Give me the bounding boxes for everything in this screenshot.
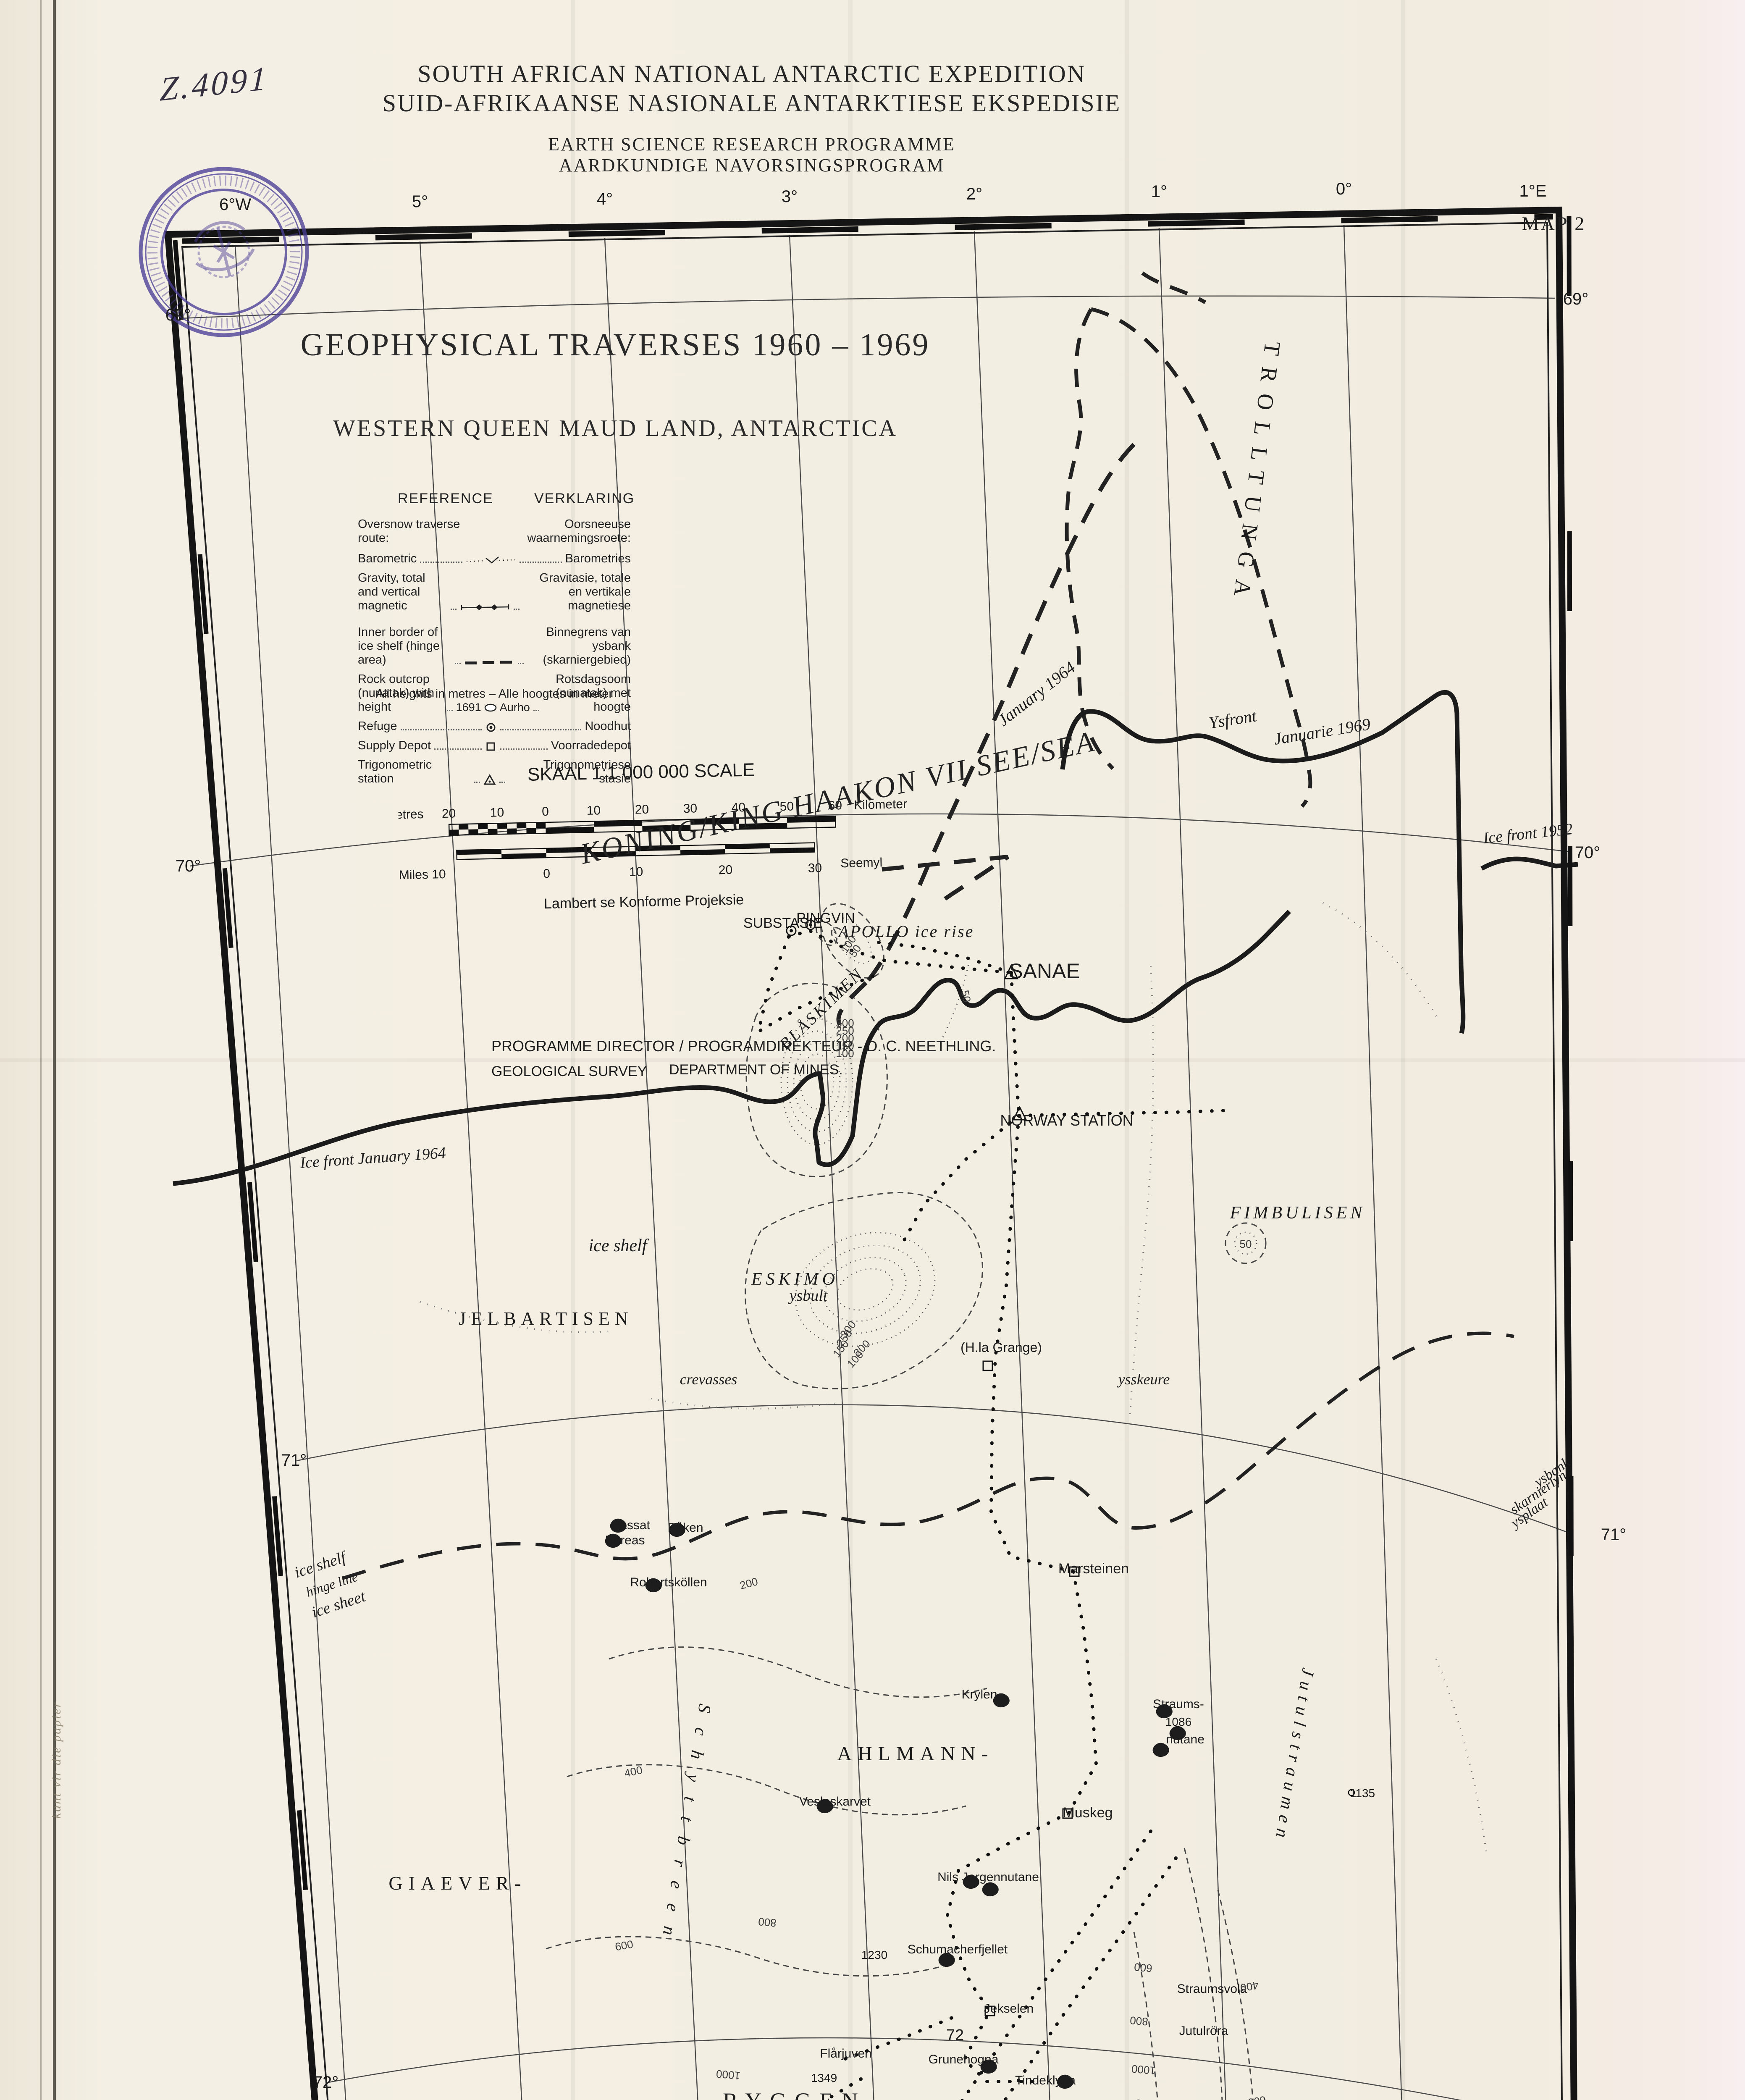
map-number: MAP 2 xyxy=(1522,213,1586,235)
map-label: FIMBULISEN xyxy=(1230,1204,1366,1222)
scale-segment xyxy=(497,829,507,834)
gravity-route-icon xyxy=(460,602,510,613)
scale-segment xyxy=(459,829,468,835)
map-label: Boreas xyxy=(605,1534,645,1547)
contour-label: 800 xyxy=(1129,2015,1148,2027)
scale-text: 30 xyxy=(808,861,822,875)
contour-label: 100 xyxy=(836,1048,854,1059)
scale-segment xyxy=(478,829,488,835)
scale-segment xyxy=(517,823,526,828)
map-label: Jekselen xyxy=(984,2003,1034,2015)
hinge-border-icon xyxy=(464,658,514,667)
map-label: ysbult xyxy=(790,1288,828,1304)
map-label: Tindeklypa xyxy=(1015,2074,1076,2087)
station-symbols xyxy=(619,920,1354,2100)
scale-text: 20 xyxy=(442,806,456,821)
legend-af: Noodhut xyxy=(585,719,631,733)
hinge-line xyxy=(342,1333,1514,1579)
legend-leader xyxy=(533,710,539,711)
scale-segment xyxy=(725,844,770,849)
map-label: PINGVIN xyxy=(796,911,855,925)
graticule-label-top: 6°W xyxy=(219,196,251,213)
graticule-label-left: 69° xyxy=(165,307,191,323)
map-label: Vesleskarvet xyxy=(799,1795,871,1808)
contour-label: 400 xyxy=(1239,1979,1259,1993)
contour-label: 1000 xyxy=(716,2068,741,2082)
graticule-label-left: 72° xyxy=(313,2074,339,2091)
scale-segment xyxy=(536,828,546,833)
scale-segment xyxy=(517,828,526,834)
refuge-icon xyxy=(485,722,497,733)
map-label: Krylen xyxy=(961,1688,997,1701)
map-label: GIAEVER- xyxy=(388,1874,527,1893)
scale-segment xyxy=(459,824,468,829)
map-label: 1230 xyxy=(861,1949,887,1961)
scale-text: SKAAL 1:1 000 000 SCALE xyxy=(527,760,755,785)
supply-depot-icon xyxy=(731,1361,1079,2100)
map-label: RYGGEN xyxy=(723,2089,866,2100)
scale-text: 10 xyxy=(586,803,601,818)
scale-segment xyxy=(488,829,497,834)
scale-segment xyxy=(488,823,497,829)
contour-label: 50 xyxy=(959,989,972,1003)
programme-en: EARTH SCIENCE RESEARCH PROGRAMME xyxy=(548,134,955,155)
legend-leader xyxy=(455,663,461,664)
graticule-label-top: 4° xyxy=(597,191,613,207)
scale-text: 10 xyxy=(490,806,504,820)
map-sheet: 0° 90°W 90°E 180° South Pole ANTARCTICA … xyxy=(0,0,1745,2100)
legend-leader xyxy=(447,710,453,711)
legend-en: Refuge xyxy=(358,719,397,733)
graticule-label-top: 1° xyxy=(1151,183,1167,200)
scale-text: Seemyl xyxy=(840,856,883,870)
map-label: Marsteinen xyxy=(1058,1562,1129,1576)
legend-en: Oversnow traverse route: xyxy=(358,517,478,545)
map-label: APOLLO ice rise xyxy=(839,923,974,940)
legend-row: Inner border of ice shelf (hinge area)Bi… xyxy=(358,625,631,667)
map-label: (H.la Grange) xyxy=(960,1341,1042,1354)
map-label: nutane xyxy=(1166,1733,1204,1746)
graticule-label-top: 3° xyxy=(782,188,798,205)
map-label: ysskeure xyxy=(1118,1372,1170,1387)
credit-department: DEPARTMENT OF MINES. xyxy=(669,1062,843,1078)
map-label: ESKIMO xyxy=(751,1270,839,1288)
legend-outcrop-height: 1691 xyxy=(456,701,481,714)
map-label: 1135 xyxy=(1350,1788,1375,1799)
scale-segment xyxy=(546,827,594,833)
legend-title-en: REFERENCE xyxy=(398,491,493,507)
scale-segment xyxy=(497,823,507,829)
graticule-label-top: 1°E xyxy=(1519,183,1547,199)
scale-segment xyxy=(478,824,488,829)
credit-survey: GEOLOGICAL SURVEY xyxy=(491,1063,647,1080)
map-label: ice shelf xyxy=(589,1237,647,1255)
map-label: 1086 xyxy=(1165,1716,1191,1728)
scale-segment xyxy=(770,848,815,853)
legend-leader xyxy=(500,729,581,730)
graticule-label-right: 70° xyxy=(1575,844,1601,861)
map-label: JELBARTISEN xyxy=(459,1310,633,1328)
legend-leader xyxy=(518,663,524,664)
graticule-label-right: 71° xyxy=(1601,1526,1627,1543)
contour-label: 1000 xyxy=(1131,2063,1156,2076)
programme-af: AARDKUNDIGE NAVORSINGSPROGRAM xyxy=(559,155,945,176)
sheet-title-en: SOUTH AFRICAN NATIONAL ANTARCTIC EXPEDIT… xyxy=(417,60,1086,88)
legend-en: Inner border of ice shelf (hinge area) xyxy=(358,625,451,667)
contour-label: 50 xyxy=(1240,1239,1252,1249)
map-label: Muskeg xyxy=(1063,1806,1113,1820)
scale-segment xyxy=(507,828,517,834)
scale-segment xyxy=(536,822,546,828)
scale-text: 0 xyxy=(542,805,549,819)
map-label: crevasses xyxy=(680,1372,737,1387)
legend-title-af: VERKLARING xyxy=(534,491,635,507)
legend-row: Gravity, total and vertical magneticGrav… xyxy=(358,571,631,613)
scale-segment xyxy=(680,849,725,855)
map-label: Straumsvola xyxy=(1177,1983,1247,1995)
map-label: NORWAY STATION xyxy=(1000,1113,1133,1128)
scale-segment xyxy=(526,822,536,828)
legend-row: Oversnow traverse route:Oorsneeuse waarn… xyxy=(358,517,631,545)
map-label: Robertsköllen xyxy=(630,1576,707,1589)
legend-row: RefugeNoodhut xyxy=(358,719,631,733)
scale-text: 10 xyxy=(629,865,643,879)
credit-director: PROGRAMME DIRECTOR / PROGRAMDIREKTEUR - … xyxy=(491,1037,996,1055)
scale-segment xyxy=(449,824,459,829)
map-title: GEOPHYSICAL TRAVERSES 1960 – 1969 xyxy=(301,327,930,363)
scale-text: Lambert se Konforme Projeksie xyxy=(544,892,744,912)
map-subtitle: WESTERN QUEEN MAUD LAND, ANTARCTICA xyxy=(333,415,897,442)
sheet-title-af: SUID-AFRIKAANSE NASIONALE ANTARKTIESE EK… xyxy=(383,89,1121,117)
legend-row: BarometricBarometries xyxy=(358,552,631,566)
legend-en: Barometric xyxy=(358,552,417,566)
map-label: AHLMANN- xyxy=(837,1744,994,1764)
map-label: Straums- xyxy=(1153,1698,1204,1711)
map-label: Båken xyxy=(667,1522,703,1534)
graticule-label-top: 5° xyxy=(412,193,428,210)
contour-label: 600 xyxy=(614,1938,634,1952)
legend-af: Gravitasie, totale en vertikale magnetie… xyxy=(523,571,631,613)
legend-leader xyxy=(514,609,520,610)
legend-leader xyxy=(420,562,462,563)
scale-segment xyxy=(526,828,536,833)
scale-segment xyxy=(507,823,517,828)
scale-segment xyxy=(449,829,459,835)
map-label: 72 xyxy=(946,2027,964,2043)
margin-handwriting: kant vir die papier xyxy=(50,1701,64,1819)
map-label: Grunehogna xyxy=(929,2053,999,2066)
legend-en: Gravity, total and vertical magnetic xyxy=(358,571,447,613)
map-label: SANAE xyxy=(1009,961,1080,982)
library-stamp xyxy=(123,151,325,353)
scale-text: Nautical Miles 10 xyxy=(397,867,446,883)
legend-af: Oorsneeuse waarnemingsroete: xyxy=(478,517,631,545)
map-label: Schumacherfjellet xyxy=(908,1943,1008,1956)
legend-af: Binnegrens van ysbank (skarniergebied) xyxy=(527,625,631,667)
contour-label: 600 xyxy=(1134,1961,1152,1974)
map-label: Jutulröra xyxy=(1179,2025,1228,2037)
legend-leader xyxy=(451,609,457,610)
map-label: Flårjuven xyxy=(820,2047,871,2060)
scale-segment xyxy=(468,829,478,835)
legend-leader xyxy=(401,729,482,730)
legend-note: All heights in metres – Alle hoogtes in … xyxy=(358,687,631,701)
graticule-label-top: 0° xyxy=(1336,181,1352,197)
scale-text: 20 xyxy=(718,863,732,877)
contour-label: 800 xyxy=(758,1916,777,1929)
scale-segment xyxy=(501,853,546,858)
legend-leader xyxy=(520,562,562,563)
scale-segment xyxy=(457,849,501,855)
scale-segment xyxy=(468,824,478,829)
graticule-label-left: 71° xyxy=(281,1452,307,1469)
map-label: 1349 xyxy=(811,2072,837,2084)
legend-af: Barometries xyxy=(565,552,631,566)
barometric-route-icon xyxy=(466,555,516,566)
scale-text: 20 xyxy=(635,803,649,817)
legend-outcrop-name: Aurho xyxy=(500,701,530,714)
graticule-label-left: 70° xyxy=(176,858,201,874)
map-label: Nils Jorgennutane xyxy=(937,1871,1039,1884)
rock-outcrop-icon xyxy=(483,703,498,713)
graticule-label-top: 2° xyxy=(966,186,982,202)
scale-text: Kilometres xyxy=(397,807,424,822)
graticule-label-right: 69° xyxy=(1563,291,1589,307)
scale-text: 0 xyxy=(543,867,550,881)
map-label: Passat xyxy=(611,1519,650,1532)
